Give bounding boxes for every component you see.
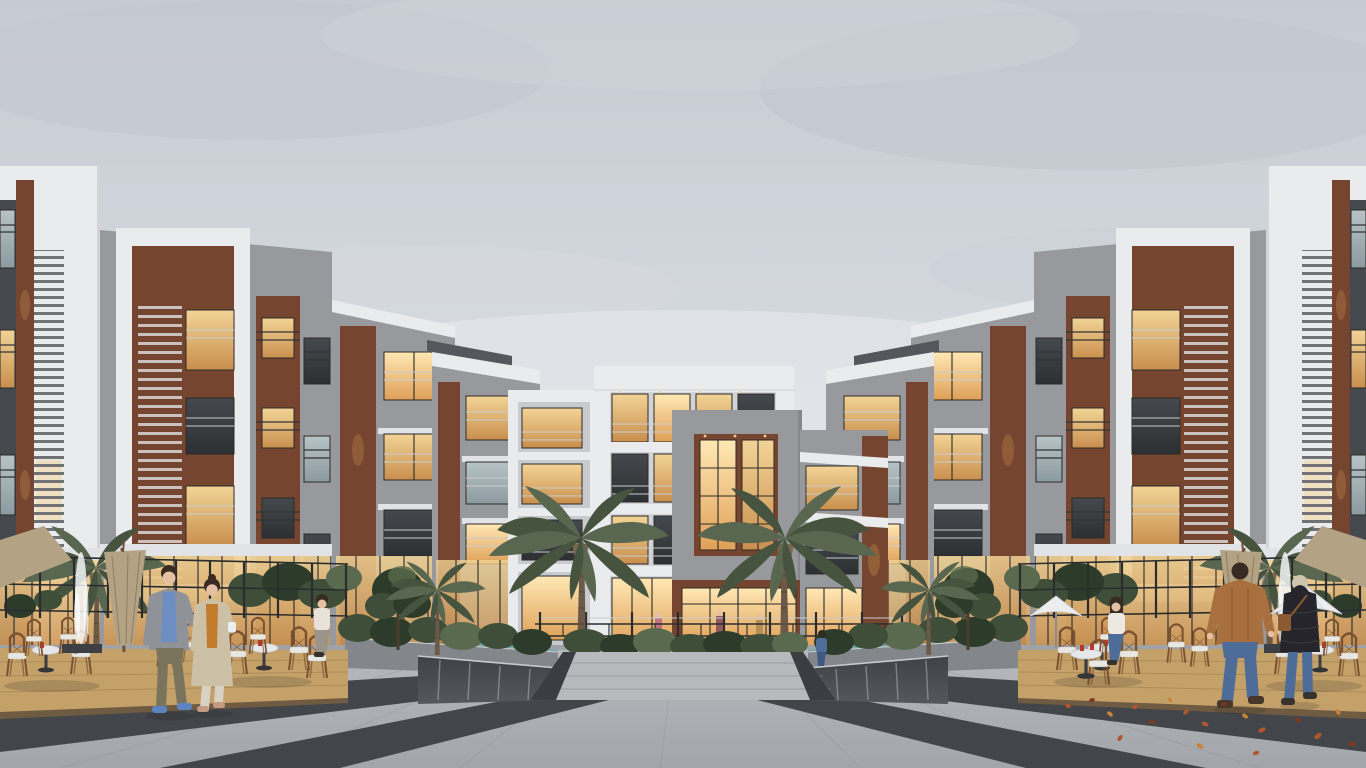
window	[262, 498, 294, 538]
window	[186, 486, 234, 546]
window	[262, 408, 294, 448]
sneaker	[152, 706, 167, 713]
window	[612, 394, 648, 442]
brick-pier	[862, 436, 888, 648]
leather-jacket	[1216, 579, 1264, 644]
center-steps	[530, 652, 836, 700]
window	[262, 318, 294, 358]
sneaker	[177, 703, 192, 710]
window	[304, 338, 330, 384]
coffee-cup	[228, 622, 236, 632]
window	[0, 210, 15, 268]
shoulder-bag	[1278, 614, 1291, 631]
window	[186, 310, 234, 370]
rendering-stage: Residential courtyard at dusk — architec…	[0, 0, 1366, 768]
window	[0, 455, 15, 515]
courtyard-rendering: Residential courtyard at dusk — architec…	[0, 0, 1366, 768]
window	[522, 408, 582, 448]
window	[304, 436, 330, 482]
white-sweater	[1108, 613, 1125, 634]
window	[522, 464, 582, 504]
balcony-slats	[138, 300, 182, 584]
window	[0, 330, 15, 388]
